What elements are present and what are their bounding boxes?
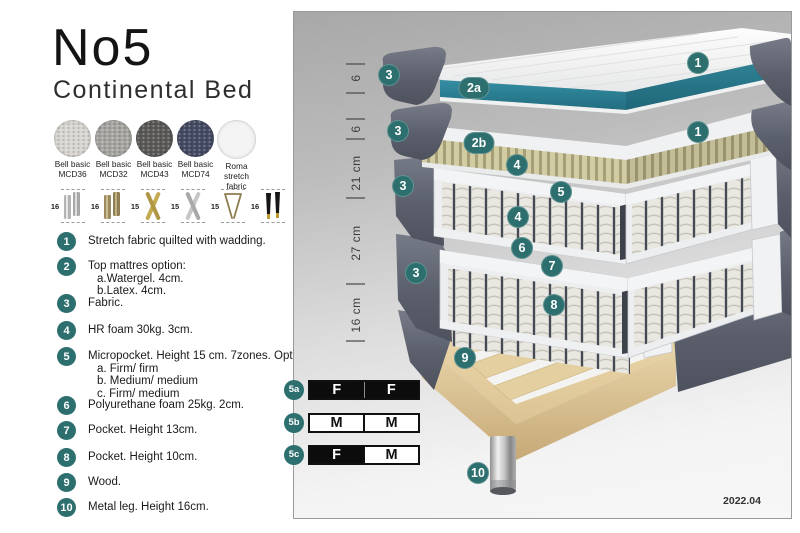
firmness-badge: 5b bbox=[284, 413, 304, 433]
fabric-swatch-label: Bell basicMCD36 bbox=[52, 160, 93, 180]
callout-6: 6 bbox=[511, 237, 533, 259]
leg-option[interactable]: 15 bbox=[208, 189, 248, 223]
fabric-swatch[interactable]: Bell basicMCD74 bbox=[175, 120, 216, 192]
watergel-top-mattress bbox=[383, 28, 791, 114]
leg-height-label: 15 bbox=[171, 202, 179, 211]
fabric-swatch[interactable]: Bell basicMCD36 bbox=[52, 120, 93, 192]
cross-silver-leg-icon bbox=[181, 189, 205, 223]
firmness-cell: F bbox=[365, 382, 419, 398]
measurement-label: 16 cm bbox=[349, 297, 363, 332]
legend-text: Pocket. Height 13cm. bbox=[88, 424, 197, 437]
legend-number-badge: 4 bbox=[57, 321, 76, 340]
legend-number-badge: 1 bbox=[57, 232, 76, 251]
leg-option[interactable]: 16 bbox=[88, 189, 128, 223]
fabric-swatch-label: Bell basicMCD43 bbox=[134, 160, 175, 180]
firmness-cell: F bbox=[310, 447, 365, 463]
cross-gold-leg-icon bbox=[141, 189, 165, 223]
fabric-swatch-circle[interactable] bbox=[54, 120, 91, 157]
firmness-cell: M bbox=[365, 447, 418, 463]
legend-text-sub: a. Firm/ firm bbox=[97, 363, 311, 376]
callout-1: 1 bbox=[687, 52, 709, 74]
fabric-swatch-row: Bell basicMCD36 Bell basicMCD32 Bell bas… bbox=[52, 120, 257, 192]
firmness-cells: F F bbox=[308, 380, 420, 400]
legend-text: Top mattres option: bbox=[88, 260, 186, 273]
legend-number-badge: 2 bbox=[57, 257, 76, 276]
callout-4: 4 bbox=[507, 206, 529, 228]
leg-height-label: 15 bbox=[131, 202, 139, 211]
diagram-panel: 6 6 21 cm 27 cm 16 cm 3 1 2a 3 1 2b 4 3 … bbox=[293, 11, 792, 519]
fabric-swatch[interactable]: Bell basicMCD43 bbox=[134, 120, 175, 192]
callout-8: 8 bbox=[543, 294, 565, 316]
firmness-badge: 5c bbox=[284, 445, 304, 465]
leg-height-label: 16 bbox=[91, 202, 99, 211]
callout-3: 3 bbox=[392, 175, 414, 197]
fabric-swatch[interactable]: Bell basicMCD32 bbox=[93, 120, 134, 192]
product-title: No5 bbox=[52, 22, 153, 74]
legend-number-badge: 3 bbox=[57, 294, 76, 313]
legend-number-badge: 9 bbox=[57, 473, 76, 492]
callout-5: 5 bbox=[550, 181, 572, 203]
firmness-cell: M bbox=[310, 415, 365, 431]
leg-height-label: 15 bbox=[211, 202, 219, 211]
legend-item-4: 4 HR foam 30kg. 3cm. bbox=[57, 321, 193, 340]
legend-item-9: 9 Wood. bbox=[57, 473, 121, 492]
legend-item-8: 8 Pocket. Height 10cm. bbox=[57, 448, 197, 467]
leg-option[interactable]: 15 bbox=[128, 189, 168, 223]
cone-black-gold-leg-icon bbox=[261, 189, 285, 223]
callout-9: 9 bbox=[454, 347, 476, 369]
callout-3: 3 bbox=[405, 262, 427, 284]
fabric-swatch-label: Bell basicMCD74 bbox=[175, 160, 216, 180]
leg-height-label: 16 bbox=[51, 202, 59, 211]
leg-height-label: 16 bbox=[251, 202, 259, 211]
legend-item-1: 1 Stretch fabric quilted with wadding. bbox=[57, 232, 266, 251]
firmness-row-5c: 5c F M bbox=[284, 444, 420, 465]
legend-text: Polyurethane foam 25kg. 2cm. bbox=[88, 399, 244, 412]
fabric-swatch-label: Bell basicMCD32 bbox=[93, 160, 134, 180]
legend-text-sub: a.Watergel. 4cm. bbox=[97, 273, 186, 286]
cylinder-bronze-leg-icon bbox=[101, 189, 125, 223]
leg-options-row: 16 16 15 15 15 16 bbox=[48, 189, 288, 223]
legend-number-badge: 8 bbox=[57, 448, 76, 467]
callout-4: 4 bbox=[506, 154, 528, 176]
legend-item-7: 7 Pocket. Height 13cm. bbox=[57, 421, 197, 440]
legend-text: Pocket. Height 10cm. bbox=[88, 451, 197, 464]
legend-item-2: 2 Top mattres option: a.Watergel. 4cm. b… bbox=[57, 257, 186, 298]
cylinder-silver-leg-icon bbox=[61, 189, 85, 223]
firmness-row-5a: 5a F F bbox=[284, 379, 420, 400]
firmness-cell: F bbox=[310, 382, 365, 398]
legend-item-3: 3 Fabric. bbox=[57, 294, 123, 313]
legend-text: Metal leg. Height 16cm. bbox=[88, 501, 209, 514]
leg-option[interactable]: 16 bbox=[248, 189, 288, 223]
measurement-label: 6 bbox=[349, 74, 363, 81]
legend-text: HR foam 30kg. 3cm. bbox=[88, 324, 193, 337]
firmness-cells: F M bbox=[308, 445, 420, 465]
legend-number-badge: 10 bbox=[57, 498, 76, 517]
firmness-row-5b: 5b M M bbox=[284, 412, 420, 433]
leg-option[interactable]: 16 bbox=[48, 189, 88, 223]
callout-2a: 2a bbox=[459, 77, 490, 99]
callout-2b: 2b bbox=[464, 132, 495, 154]
fabric-swatch-circle[interactable] bbox=[177, 120, 214, 157]
fabric-swatch-label: Romastretch fabric bbox=[216, 162, 257, 192]
legend-text: Stretch fabric quilted with wadding. bbox=[88, 235, 266, 248]
version-label: 2022.04 bbox=[723, 495, 761, 507]
legend-text: Micropocket. Height 15 cm. 7zones. Optio… bbox=[88, 350, 311, 363]
firmness-badge: 5a bbox=[284, 380, 304, 400]
leg-option[interactable]: 15 bbox=[168, 189, 208, 223]
legend-text-sub: b. Medium/ medium bbox=[97, 375, 311, 388]
fabric-swatch-circle[interactable] bbox=[95, 120, 132, 157]
fabric-swatch-circle[interactable] bbox=[217, 120, 256, 159]
legend-text: Wood. bbox=[88, 476, 121, 489]
callout-3: 3 bbox=[378, 64, 400, 86]
callout-10: 10 bbox=[467, 462, 489, 484]
fabric-swatch[interactable]: Romastretch fabric bbox=[216, 120, 257, 192]
measurement-label: 6 bbox=[349, 125, 363, 132]
callout-7: 7 bbox=[541, 255, 563, 277]
callout-3: 3 bbox=[387, 120, 409, 142]
legend-number-badge: 5 bbox=[57, 347, 76, 366]
legend-number-badge: 6 bbox=[57, 396, 76, 415]
measurement-label: 21 cm bbox=[349, 155, 363, 190]
firmness-cell: M bbox=[365, 415, 418, 431]
bed-infographic: No5 Continental Bed Bell basicMCD36 Bell… bbox=[0, 0, 800, 533]
legend-number-badge: 7 bbox=[57, 421, 76, 440]
fabric-swatch-circle[interactable] bbox=[136, 120, 173, 157]
callout-1: 1 bbox=[687, 121, 709, 143]
firmness-cells: M M bbox=[308, 413, 420, 433]
product-subtitle: Continental Bed bbox=[53, 76, 253, 105]
legend-item-5: 5 Micropocket. Height 15 cm. 7zones. Opt… bbox=[57, 347, 311, 400]
legend-text: Fabric. bbox=[88, 297, 123, 310]
hairpin-leg-icon bbox=[221, 189, 245, 223]
measurement-label: 27 cm bbox=[349, 225, 363, 260]
legend-item-10: 10 Metal leg. Height 16cm. bbox=[57, 498, 209, 517]
front-metal-leg bbox=[490, 436, 516, 495]
legend-item-6: 6 Polyurethane foam 25kg. 2cm. bbox=[57, 396, 244, 415]
